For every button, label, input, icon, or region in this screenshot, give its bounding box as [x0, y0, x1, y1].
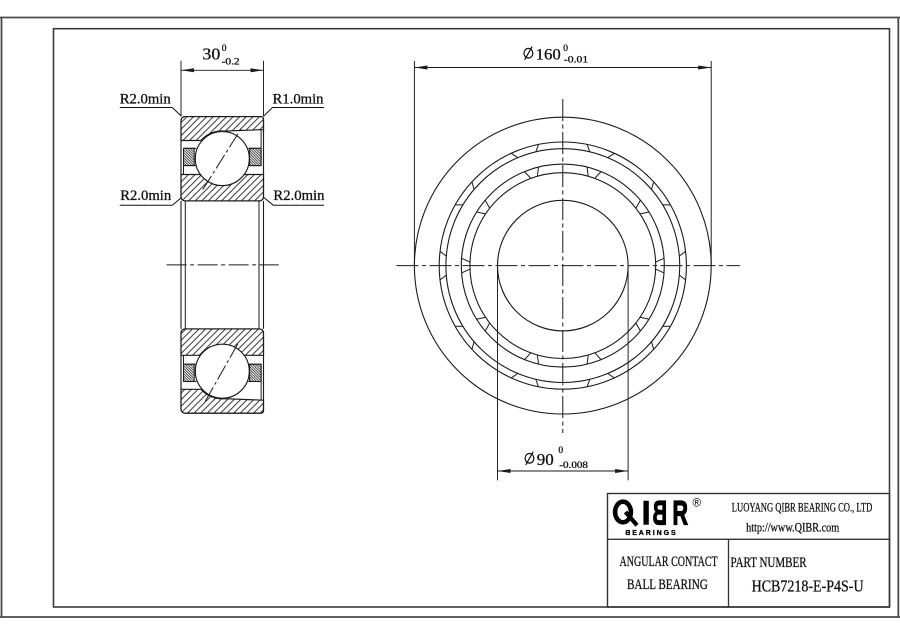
svg-text:-0.2: -0.2: [222, 57, 240, 67]
svg-text:HCB7218-E-P4S-U: HCB7218-E-P4S-U: [752, 577, 864, 596]
svg-text:EARINGS: EARINGS: [632, 530, 677, 537]
svg-text:LUOYANG QIBR BEARING CO., LTD: LUOYANG QIBR BEARING CO., LTD: [732, 501, 872, 515]
svg-text:R1.0min: R1.0min: [273, 91, 325, 107]
svg-text:R: R: [673, 495, 688, 533]
svg-text:0: 0: [558, 446, 563, 456]
svg-text:R2.0min: R2.0min: [120, 91, 172, 107]
svg-text:160: 160: [536, 45, 561, 64]
svg-text:R2.0min: R2.0min: [273, 188, 325, 204]
svg-text:I: I: [641, 495, 650, 533]
svg-text:-0.01: -0.01: [564, 56, 588, 66]
svg-text:BALL BEARING: BALL BEARING: [627, 575, 708, 592]
svg-text:http://www.QIBR.com: http://www.QIBR.com: [746, 520, 839, 534]
svg-text:-0.008: -0.008: [559, 460, 588, 470]
svg-text:ANGULAR CONTACT: ANGULAR CONTACT: [620, 553, 718, 569]
svg-text:R2.0min: R2.0min: [120, 188, 172, 204]
svg-text:30: 30: [202, 44, 220, 64]
svg-text:PART NUMBER: PART NUMBER: [731, 553, 807, 570]
svg-text:®: ®: [693, 498, 702, 510]
svg-text:0: 0: [222, 44, 227, 54]
svg-text:0: 0: [563, 44, 568, 54]
svg-text:B: B: [653, 494, 667, 532]
svg-text:90: 90: [537, 450, 554, 469]
svg-text:B: B: [625, 530, 630, 537]
